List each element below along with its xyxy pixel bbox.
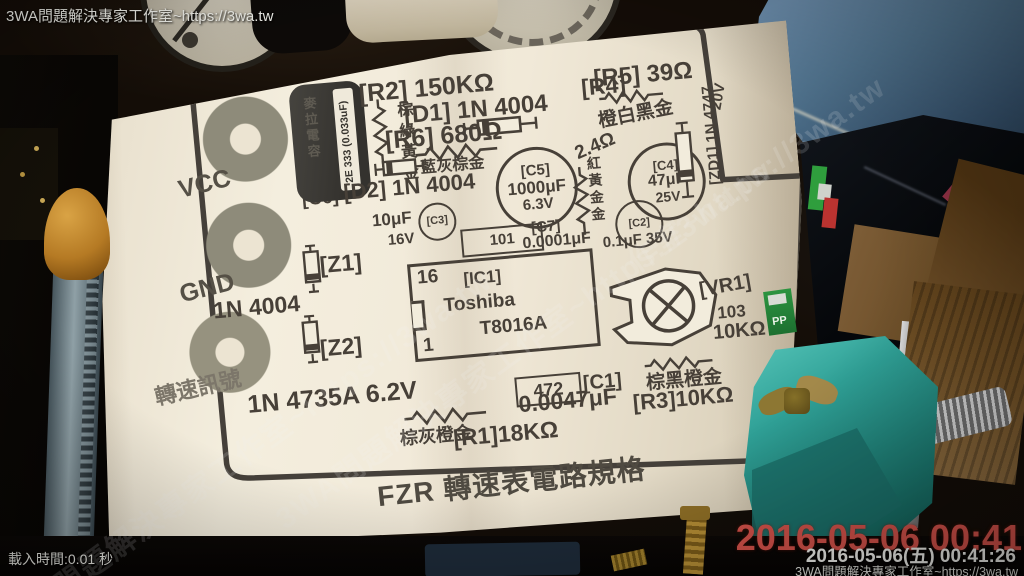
c3-value: 10μF	[371, 209, 412, 230]
navy-box	[425, 542, 581, 576]
c6-body-text: 麥拉電容	[299, 96, 326, 193]
brass-screw-head	[680, 506, 710, 520]
c3-voltage: 16V	[387, 231, 415, 249]
load-time-label: 載入時間:0.01 秒	[8, 549, 113, 569]
watermark-top-left: 3WA問題解決專家工作室~https://3wa.tw	[6, 5, 273, 26]
pp-label: PP	[763, 288, 797, 335]
brass-screw	[683, 513, 707, 574]
c6-spec-label: 2E 333 (0.033uF)	[337, 91, 357, 192]
photo-scene: VCC GND 轉速訊號 [C6] 麥拉電容 2E 333 (0.033uF) …	[0, 0, 1024, 576]
z1-label: [Z1]	[319, 249, 363, 277]
watermark-bottom-right: 3WA問題解決專家工作室~https://3wa.tw	[795, 561, 1018, 576]
c5-voltage: 6.3V	[522, 195, 554, 213]
c7-code: 101	[489, 231, 515, 249]
c3-id: [C3]	[426, 215, 448, 228]
pp-label-text: PP	[772, 315, 788, 328]
vise-slide-plate	[884, 321, 936, 528]
vise-screw-thread	[915, 385, 1014, 446]
